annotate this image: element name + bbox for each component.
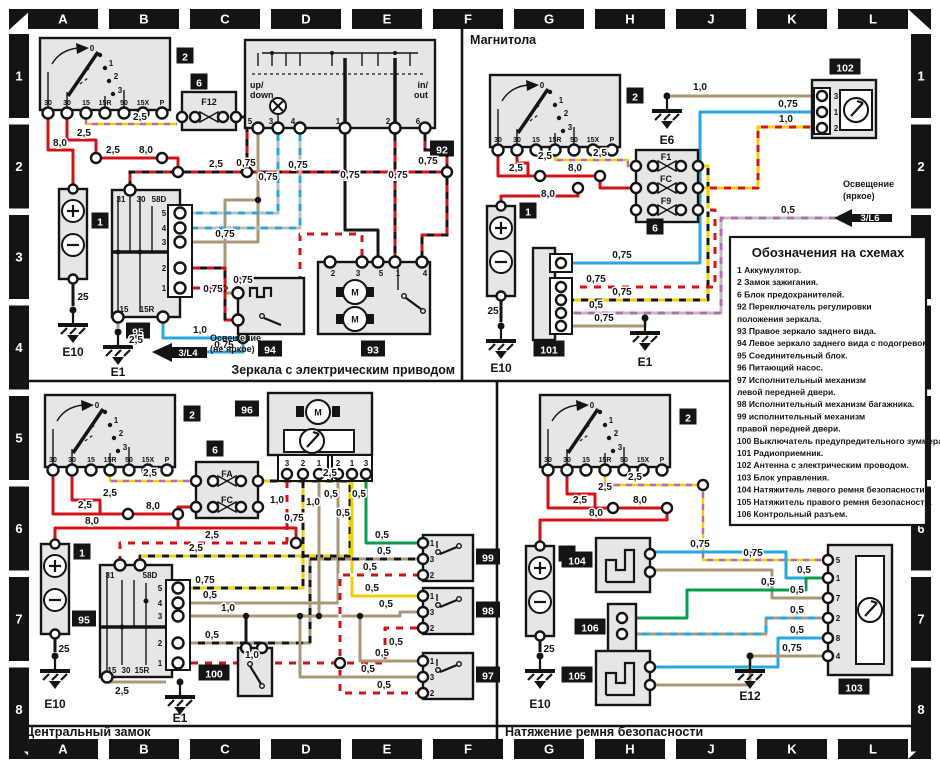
text-label: out <box>414 90 428 100</box>
diagram-shape <box>343 280 367 304</box>
diagram-shape <box>417 257 428 268</box>
grid-cell-label: 6 <box>15 521 22 536</box>
battery <box>59 185 87 284</box>
legend-item: 101 Радиоприемник. <box>737 448 823 458</box>
component-badge-label: 6 <box>652 223 658 235</box>
diagram-shape <box>125 185 136 196</box>
terminal-number: 2 <box>301 459 306 468</box>
wire-gauge-label: 2,5 <box>78 500 92 511</box>
grid-cell-label: D <box>301 742 310 757</box>
terminal-number: 1 <box>350 459 355 468</box>
diagram-shape <box>335 658 345 668</box>
diagram-shape <box>817 91 827 101</box>
wire-overlay <box>130 172 247 185</box>
grid-cell-label: H <box>625 742 634 757</box>
terminal-number: 4 <box>291 117 296 126</box>
terminal-number: 1 <box>396 269 401 278</box>
wire-gauge-label: 0,75 <box>743 548 763 559</box>
diagram-shape <box>631 161 641 171</box>
wire-gauge-label: 2,5 <box>143 468 157 479</box>
legend-item: левой передней двери. <box>737 387 836 397</box>
quadrant-mirrors: 26921959493F12up/downin/out5341262351431… <box>40 38 455 379</box>
legend-item: 2 Замок зажигания. <box>737 277 818 287</box>
diagram-shape <box>295 123 306 134</box>
terminal-number: 5 <box>162 209 167 218</box>
wire-gauge-label: 2,5 <box>593 148 607 159</box>
wire-gauge-label: 0,5 <box>790 605 804 616</box>
diagram-shape <box>173 509 183 519</box>
diagram-shape <box>231 112 241 122</box>
diagram-shape <box>191 476 201 486</box>
wire-gauge-label: 0,75 <box>340 170 360 181</box>
terminal-number: 58D <box>143 571 158 580</box>
ground-e1 <box>165 679 195 716</box>
wire-gauge-label: 2,5 <box>628 472 642 483</box>
component-badge-label: 6 <box>196 78 202 90</box>
diagram-shape <box>347 469 357 479</box>
wire-gauge-label: 0,75 <box>388 170 408 181</box>
terminal-number: 5 <box>836 556 841 565</box>
wire-gauge-label: 0,75 <box>288 160 308 171</box>
ground-label: E1 <box>111 365 126 379</box>
legend-item: 96 Питающий насос. <box>737 363 823 373</box>
wire-gauge-label: 1,0 <box>270 495 284 506</box>
wire-gauge-label: 0,5 <box>203 590 217 601</box>
diagram-shape <box>617 613 627 623</box>
tensioner-105 <box>596 651 655 705</box>
diagram-shape <box>608 503 618 513</box>
component-badge-label: 106 <box>581 623 599 635</box>
component-badge-label: 2 <box>189 410 195 422</box>
wire-gauge-label: 2,5 <box>133 112 147 123</box>
wire-gauge-label: 0,75 <box>203 284 223 295</box>
diagram-shape <box>306 400 330 424</box>
diagram-shape <box>332 406 340 417</box>
terminal-number: 2 <box>836 614 841 623</box>
tensioner-104 <box>596 538 655 592</box>
legend-item: 102 Антенна с электрическим проводом. <box>737 460 909 470</box>
battery <box>526 542 554 641</box>
wire-gauge-label: 0,5 <box>375 648 389 659</box>
diagram-shape <box>823 573 833 583</box>
diagram-shape <box>115 560 126 571</box>
grid-cell-label: F <box>464 742 472 757</box>
text-label: Освещение <box>843 179 894 189</box>
ground-label: E1 <box>173 711 188 725</box>
component-badge-label: 6 <box>212 445 218 457</box>
diagram-shape <box>144 599 149 604</box>
grid-cell-label: E <box>383 12 392 27</box>
diagram-shape <box>130 172 247 185</box>
component-badge-label: 2 <box>182 52 188 64</box>
frame-corner <box>908 9 931 30</box>
wire-gauge-label: 2,5 <box>573 495 587 506</box>
wire-gauge-label: 8,0 <box>568 163 582 174</box>
ground-label: E12 <box>739 689 761 703</box>
component-badge-label: 99 <box>482 553 494 565</box>
wire-gauge-label: 1,0 <box>306 497 320 508</box>
diagram-shape <box>343 307 367 331</box>
terminal-number: 2 <box>162 264 167 273</box>
component-badge-label: 1 <box>97 217 103 229</box>
terminal-number: 3 <box>162 238 167 247</box>
legend-item: 92 Переключатель регулировки <box>737 302 872 312</box>
ground-e10 <box>58 307 88 344</box>
diagram-shape <box>442 167 452 177</box>
antenna-102 <box>812 80 876 138</box>
connector-block-95 <box>112 185 192 323</box>
diagram-shape <box>823 555 833 565</box>
diagram-shape <box>175 263 186 274</box>
grid-cell-label: L <box>869 742 877 757</box>
wire-gauge-label: 2,5 <box>77 128 91 139</box>
terminal-number: 15R <box>140 305 155 314</box>
diagram-shape <box>361 469 371 479</box>
wire-gauge-label: 0,5 <box>389 637 403 648</box>
grid-cell-label: 7 <box>15 612 22 627</box>
wire-gauge-label: 0,5 <box>324 489 338 500</box>
terminal-number: 3 <box>285 459 290 468</box>
wire-gauge-label: 0,5 <box>589 300 603 311</box>
text-label: F1 <box>661 152 672 162</box>
wire-gauge-label: 8,0 <box>633 495 647 506</box>
actuator-97 <box>418 653 473 699</box>
terminal-number: 31 <box>106 571 115 580</box>
terminal-number: 2 <box>331 269 336 278</box>
terminal-number: 1 <box>317 459 322 468</box>
diagram-shape <box>175 237 186 248</box>
wire-gauge-label: 0,75 <box>284 513 304 524</box>
wire-gauge-label: 25 <box>487 306 499 317</box>
wire-gauge-label: 0,5 <box>790 625 804 636</box>
ground-e1 <box>630 315 660 352</box>
wire-gauge-label: 2,5 <box>115 686 129 697</box>
section-title: Натяжение ремня безопасности <box>505 725 703 739</box>
diagram-shape <box>255 197 261 203</box>
diagram-shape <box>631 205 641 215</box>
grid-cell-label: 3 <box>15 250 22 265</box>
diagram-shape <box>282 469 292 479</box>
terminal-number: 1 <box>836 574 841 583</box>
terminal-number: 8 <box>836 634 841 643</box>
terminal-number: 1 <box>162 284 167 293</box>
wire-gauge-label: 2,5 <box>509 163 523 174</box>
wire-gauge-label: 1,0 <box>245 650 259 661</box>
terminal-number: 30 <box>137 195 146 204</box>
diagram-shape <box>175 208 186 219</box>
diagram-shape <box>823 651 833 661</box>
wire-gauge-label: 0,75 <box>258 172 278 183</box>
diagram-shape <box>501 188 578 202</box>
quadrant-central-lock: 2619596100999897FAFC3158D54321153015R321… <box>25 393 500 739</box>
grid-cell-label: A <box>58 12 68 27</box>
terminal-number: 5 <box>379 269 384 278</box>
component-badge-label: 2 <box>685 413 691 425</box>
ground-label: E10 <box>490 361 512 375</box>
diagram-shape <box>233 288 244 299</box>
text-label: FA <box>221 469 233 479</box>
diagram-shape <box>823 593 833 603</box>
wire-gauge-label: 2,5 <box>205 530 219 541</box>
battery <box>41 540 69 639</box>
diagram-shape <box>173 167 183 177</box>
wire-gauge-label: 0,5 <box>797 565 811 576</box>
legend-item: 93 Правое зеркало заднего вида. <box>737 326 876 336</box>
diagram-shape <box>535 171 545 181</box>
terminal-number: 2 <box>336 459 341 468</box>
wire-gauge-label: 8,0 <box>53 138 67 149</box>
grid-cell-label: 4 <box>15 340 23 355</box>
diagram-shape <box>693 161 703 171</box>
diagram-shape <box>157 153 167 163</box>
component-badge-label: 97 <box>482 671 494 683</box>
wire-gauge-label: 0,75 <box>612 287 632 298</box>
component-badge-label: 96 <box>241 405 253 417</box>
diagram-shape <box>823 633 833 643</box>
grid-cell-label: F <box>464 12 472 27</box>
ground-label: E10 <box>529 697 551 711</box>
section-title: Магнитола <box>470 33 537 47</box>
terminal-number: 15R <box>135 666 150 675</box>
grid-cell-label: B <box>139 12 148 27</box>
component-badge-label: 94 <box>264 345 276 357</box>
terminal-number: 4 <box>423 269 428 278</box>
diagram-shape <box>233 315 244 326</box>
ground-label: E10 <box>44 697 66 711</box>
grid-cell-label: G <box>544 742 554 757</box>
diagram-shape <box>296 406 304 417</box>
grid-cell-label: 1 <box>917 69 924 84</box>
wire-gauge-label: 0,5 <box>365 583 379 594</box>
terminal-number: 58D <box>152 195 167 204</box>
diagram-shape <box>120 543 296 565</box>
text-label: up/ <box>250 80 264 90</box>
wire-gauge-label: 0,5 <box>377 680 391 691</box>
wire-gauge-label: 0,75 <box>195 575 215 586</box>
component-badge-label: 104 <box>568 556 586 568</box>
grid-cell-label: A <box>58 742 68 757</box>
diagram-shape <box>556 308 566 318</box>
wire-gauge-label: 0,5 <box>781 205 795 216</box>
wire-gauge-label: 0,5 <box>377 546 391 557</box>
grid-cell-label: L <box>869 12 877 27</box>
component-badge-label: 105 <box>568 671 586 683</box>
component-badge-label: 103 <box>845 683 863 695</box>
text-label: F12 <box>201 97 217 107</box>
wire-gauge-label: 0,75 <box>782 643 802 654</box>
diagram-shape <box>662 503 672 513</box>
text-label: F9 <box>661 196 672 206</box>
wire-gauge-label: 0,5 <box>352 489 366 500</box>
wire-gauge-label: 0,5 <box>361 664 375 675</box>
diagram-shape <box>325 257 336 268</box>
diagram-shape <box>243 613 249 619</box>
diagram-shape <box>175 283 186 294</box>
diagram-shape <box>48 118 73 184</box>
arrow-label: 3/L6 <box>860 213 879 224</box>
diagram-shape <box>316 613 322 619</box>
wire-gauge-label: 1,0 <box>693 82 707 93</box>
grid-cell-label: K <box>787 12 797 27</box>
wiring-diagram: 0 1 2 3 30 30 15 15R 50 15X P <box>0 0 940 768</box>
wire-gauge-label: 2,5 <box>129 335 143 346</box>
diagram-shape <box>556 282 566 292</box>
wire-gauge-label: 25 <box>543 644 555 655</box>
diagram-shape <box>297 613 303 619</box>
diagram-shape <box>844 98 868 122</box>
radio-101 <box>533 248 572 340</box>
diagram-shape <box>390 257 401 268</box>
diagram-shape <box>270 51 274 55</box>
terminal-number: 31 <box>117 195 126 204</box>
legend-item: правой передней двери. <box>737 424 841 434</box>
ground-e6 <box>652 93 682 130</box>
diagram-shape <box>823 613 833 623</box>
terminal-number: 3 <box>158 612 163 621</box>
diagram-shape <box>173 583 184 594</box>
diagram-shape <box>617 629 627 639</box>
diagram-shape <box>595 171 605 181</box>
wire-gauge-label: 0,5 <box>790 585 804 596</box>
grid-cell-label: J <box>707 12 714 27</box>
text-label: FC <box>660 174 672 184</box>
grid-cell-label: 7 <box>917 612 924 627</box>
grid-cell-label: H <box>625 12 634 27</box>
diagram-shape <box>123 509 133 519</box>
legend-item: 99 исполнительный механизм <box>737 411 865 421</box>
text-label: down <box>250 90 274 100</box>
grid-cell-label: G <box>544 12 554 27</box>
grid-cell-label: 5 <box>15 431 22 446</box>
wire-gauge-label: 0,5 <box>336 508 350 519</box>
diagram-shape <box>138 250 143 255</box>
wire-gauge-label: 1,0 <box>193 325 207 336</box>
terminal-number: 30 <box>122 666 131 675</box>
ground-e10 <box>40 653 70 690</box>
diagram-shape <box>693 183 703 193</box>
wire-gauge-label: 25 <box>58 644 70 655</box>
component-badge-label: 2 <box>632 92 638 104</box>
terminal-number: 1 <box>336 117 341 126</box>
diagram-shape <box>573 183 583 193</box>
terminal-number: 7 <box>836 594 841 603</box>
legend-item: 105 Натяжитель правого ремня безопасност… <box>737 497 932 507</box>
ground-label: E1 <box>638 355 653 369</box>
grid-cell-label: J <box>707 742 714 757</box>
wire-gauge-label: 0,75 <box>586 274 606 285</box>
diagram-shape <box>120 625 125 630</box>
wire-gauge-label: 0,75 <box>690 539 710 550</box>
text-label: Освещение <box>210 333 261 343</box>
diagram-shape <box>91 153 101 163</box>
diagram-shape <box>556 321 566 331</box>
wire-gauge-label: 1,0 <box>221 603 235 614</box>
ignition-switch <box>540 395 670 476</box>
wire-gauge-label: 2,5 <box>209 159 223 170</box>
component-badge-label: 100 <box>205 669 223 681</box>
text-label: (не яркое) <box>210 344 255 354</box>
component-badge-label: 92 <box>436 145 448 157</box>
terminal-number: 3 <box>364 459 369 468</box>
wire-gauge-label: 8,0 <box>541 189 555 200</box>
component-badge-label: 101 <box>540 345 558 357</box>
diagram-shape <box>300 429 324 453</box>
diagram-shape <box>693 205 703 215</box>
terminal-number: 15 <box>108 666 117 675</box>
diagram-shape <box>253 502 263 512</box>
legend-box: Обозначения на схемах 1 Аккумулятор.2 За… <box>730 237 940 525</box>
diagram-shape <box>238 278 304 334</box>
component-badge-label: 98 <box>482 606 494 618</box>
diagram-shape <box>175 223 186 234</box>
diagram-shape <box>177 112 187 122</box>
terminal-number: 15 <box>120 305 129 314</box>
diagram-shape <box>330 51 334 55</box>
terminal-number: 5 <box>248 117 253 126</box>
arrow-label: 3/L4 <box>178 348 198 359</box>
terminal-number: 4 <box>158 599 163 608</box>
grid-cell-label: 8 <box>917 702 924 717</box>
diagram-shape <box>173 611 184 622</box>
diagram-shape <box>298 469 308 479</box>
diagram-shape <box>698 480 708 490</box>
terminal-number: 6 <box>416 117 421 126</box>
diagram-shape <box>135 560 146 571</box>
grid-cell-label: C <box>220 12 230 27</box>
terminal-number: 4 <box>162 224 167 233</box>
grid-cell-label: E <box>383 742 392 757</box>
legend-item: 106 Контрольный разъем. <box>737 509 848 519</box>
wire-gauge-label: 0,5 <box>363 562 377 573</box>
diagram-shape <box>420 123 431 134</box>
text-label: FC <box>221 495 233 505</box>
terminal-number: 1 <box>158 659 163 668</box>
text-label: in/ <box>418 80 429 90</box>
diagram-shape <box>366 474 418 543</box>
grid-cell-label: B <box>139 742 148 757</box>
grid-cell-label: D <box>301 12 310 27</box>
test-connector-106 <box>608 604 636 652</box>
ignition-switch <box>45 395 175 476</box>
diagram-shape <box>631 183 641 193</box>
wire-gauge-label: 0,5 <box>375 530 389 541</box>
diagram-shape <box>173 598 184 609</box>
diagram-shape <box>173 658 184 669</box>
actuator-99 <box>418 535 473 581</box>
diagram-shape <box>191 502 201 512</box>
legend-item: 100 Выключатель предупредительного зумме… <box>737 436 940 446</box>
legend-item: 1 Аккумулятор. <box>737 265 801 275</box>
component-badge-label: 1 <box>79 548 85 560</box>
terminal-number: 1 <box>834 108 839 117</box>
wire-gauge-label: 8,0 <box>146 501 160 512</box>
diagram-shape <box>116 250 121 255</box>
diagram-shape <box>556 258 566 268</box>
diagram-shape <box>178 528 296 543</box>
wire-gauge-label: 0,75 <box>594 313 614 324</box>
ignition-switch <box>490 75 620 156</box>
wire-overlay <box>120 543 296 565</box>
terminal-number: 4 <box>836 652 841 661</box>
component-badge-label: 1 <box>525 207 531 219</box>
section-title: Центральный замок <box>25 725 151 739</box>
legend-item: 98 Исполнительный механизм багажника. <box>737 399 914 409</box>
wire-gauge-label: 1,0 <box>779 114 793 125</box>
terminal-number: 5 <box>158 584 163 593</box>
wire-gauge-label: 0,5 <box>379 599 393 610</box>
legend-item: 97 Исполнительный механизм <box>737 375 866 385</box>
diagram-shape <box>357 613 363 619</box>
